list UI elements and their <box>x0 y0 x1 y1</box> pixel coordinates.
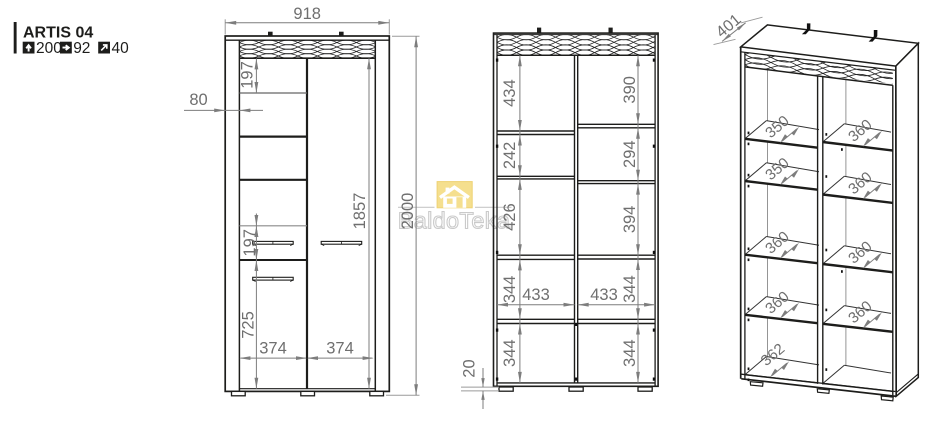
svg-text:725: 725 <box>240 311 258 339</box>
svg-text:344: 344 <box>621 339 639 367</box>
svg-text:197: 197 <box>238 61 256 89</box>
svg-text:197: 197 <box>241 229 259 257</box>
svg-text:92: 92 <box>73 40 90 57</box>
svg-text:20: 20 <box>461 359 479 377</box>
svg-text:426: 426 <box>501 203 519 231</box>
svg-text:374: 374 <box>259 340 287 358</box>
svg-text:344: 344 <box>621 275 639 303</box>
svg-text:242: 242 <box>501 142 519 170</box>
svg-text:374: 374 <box>326 340 354 358</box>
svg-text:433: 433 <box>522 286 550 304</box>
svg-text:344: 344 <box>501 276 519 304</box>
svg-text:80: 80 <box>189 91 207 109</box>
svg-text:294: 294 <box>621 140 639 168</box>
svg-text:200: 200 <box>36 40 62 57</box>
svg-text:2000: 2000 <box>399 193 417 230</box>
svg-text:434: 434 <box>501 79 519 107</box>
svg-text:ARTIS 04: ARTIS 04 <box>23 24 93 41</box>
svg-text:433: 433 <box>590 286 618 304</box>
svg-text:918: 918 <box>293 5 321 23</box>
svg-text:40: 40 <box>112 40 130 57</box>
svg-text:344: 344 <box>501 339 519 367</box>
svg-text:1857: 1857 <box>351 193 369 230</box>
svg-text:390: 390 <box>621 76 639 104</box>
svg-text:394: 394 <box>621 206 639 234</box>
